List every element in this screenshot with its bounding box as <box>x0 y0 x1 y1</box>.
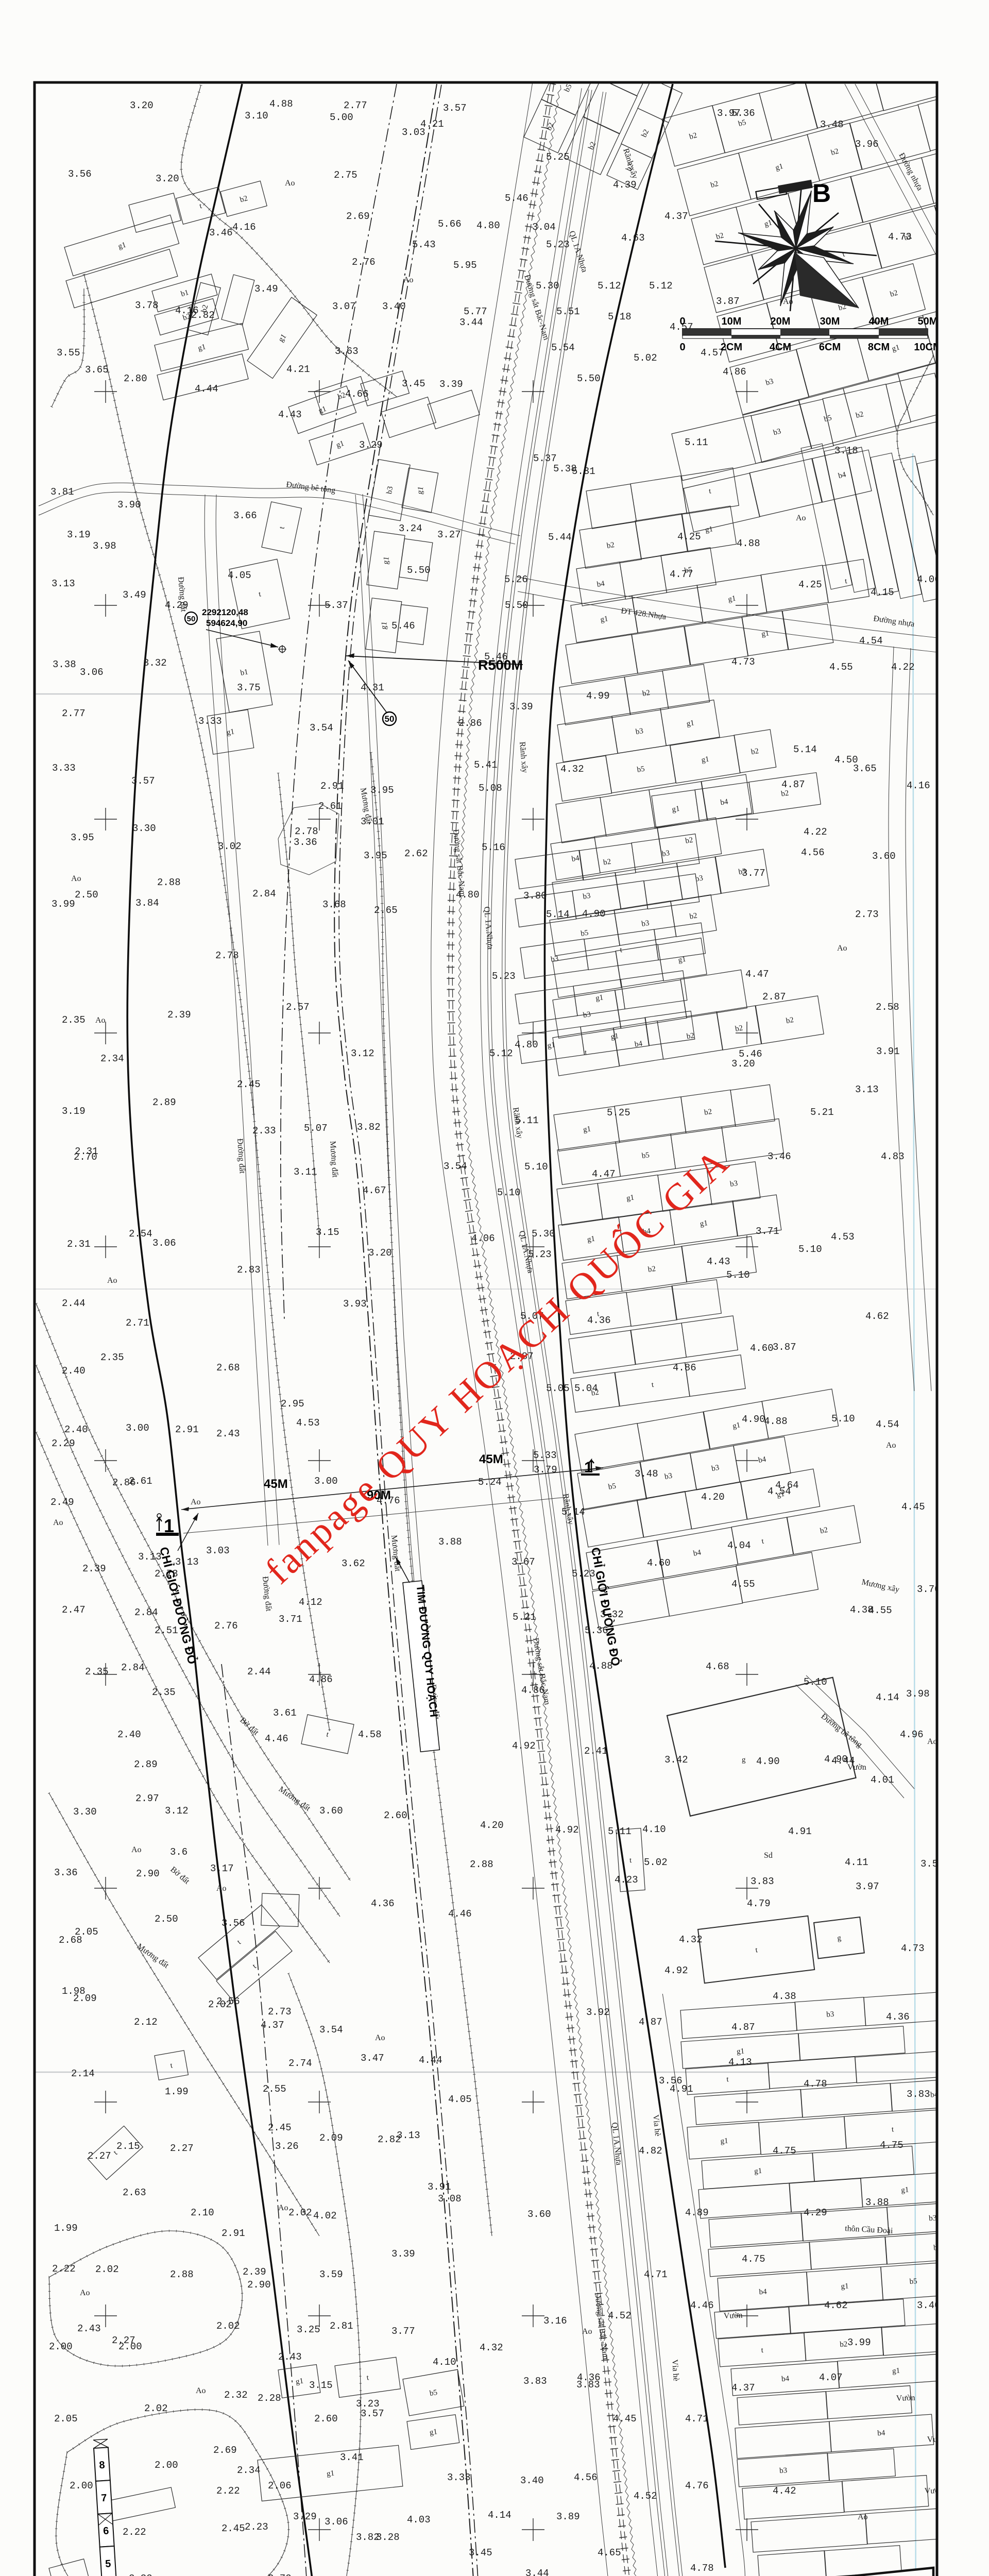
svg-text:3.63: 3.63 <box>335 346 359 357</box>
svg-text:4.87: 4.87 <box>781 779 805 790</box>
svg-text:2.14: 2.14 <box>71 2068 95 2079</box>
svg-text:4.62: 4.62 <box>865 1311 889 1322</box>
svg-text:5.41: 5.41 <box>474 759 498 771</box>
svg-text:3.57: 3.57 <box>361 2408 384 2419</box>
svg-text:6CM: 6CM <box>819 342 841 353</box>
svg-text:3.71: 3.71 <box>279 1614 302 1625</box>
svg-text:Ao: Ao <box>886 1441 896 1450</box>
svg-text:g1: g1 <box>892 2367 900 2376</box>
svg-text:g1: g1 <box>583 1125 591 1134</box>
svg-text:5.43: 5.43 <box>412 239 436 250</box>
svg-text:2.91: 2.91 <box>320 781 344 792</box>
svg-text:4.52: 4.52 <box>634 2490 657 2502</box>
svg-text:2.73: 2.73 <box>855 909 879 920</box>
svg-text:g1: g1 <box>380 621 389 630</box>
svg-text:g1: g1 <box>705 525 713 534</box>
svg-text:3.17: 3.17 <box>210 1863 234 1874</box>
svg-text:3.90: 3.90 <box>117 499 141 511</box>
svg-text:4.65: 4.65 <box>598 2547 621 2558</box>
svg-text:5.00: 5.00 <box>330 112 353 123</box>
svg-text:b3: b3 <box>826 2010 834 2019</box>
svg-text:4.36: 4.36 <box>371 1898 395 1909</box>
svg-text:5.10: 5.10 <box>524 1161 548 1173</box>
svg-text:5.37: 5.37 <box>533 453 557 464</box>
svg-text:3.78: 3.78 <box>135 300 159 311</box>
svg-text:2.91: 2.91 <box>175 1424 199 1435</box>
svg-text:3.44: 3.44 <box>459 317 483 328</box>
svg-text:4.10: 4.10 <box>642 1824 666 1835</box>
svg-text:1.99: 1.99 <box>54 2223 78 2234</box>
svg-text:3.54: 3.54 <box>444 1161 467 1172</box>
svg-text:2.12: 2.12 <box>134 2016 158 2028</box>
svg-text:3.13: 3.13 <box>397 2130 420 2141</box>
svg-text:4.10: 4.10 <box>433 2357 456 2368</box>
svg-text:b5: b5 <box>608 1482 617 1491</box>
svg-text:4.05: 4.05 <box>448 2094 472 2105</box>
svg-text:5.51: 5.51 <box>556 306 580 317</box>
svg-text:3.49: 3.49 <box>254 283 278 295</box>
svg-text:2.35: 2.35 <box>152 1687 176 1698</box>
svg-text:3.45: 3.45 <box>402 378 425 389</box>
svg-text:3.40: 3.40 <box>520 2475 544 2486</box>
svg-text:2.84: 2.84 <box>134 1607 158 1618</box>
svg-text:3.68: 3.68 <box>322 899 346 910</box>
svg-text:5.14: 5.14 <box>793 744 817 755</box>
svg-text:2.61: 2.61 <box>129 1476 152 1487</box>
svg-text:4.36: 4.36 <box>577 2372 601 2383</box>
svg-text:2.43: 2.43 <box>278 2351 302 2363</box>
svg-text:2.45: 2.45 <box>237 1079 261 1090</box>
svg-text:3.46: 3.46 <box>768 1151 791 1162</box>
svg-text:2.78: 2.78 <box>215 950 239 961</box>
svg-text:3.59: 3.59 <box>319 2269 343 2280</box>
svg-text:4.53: 4.53 <box>296 1417 320 1429</box>
svg-text:b2: b2 <box>751 747 759 756</box>
svg-text:b2: b2 <box>603 858 611 867</box>
svg-text:594624,90: 594624,90 <box>206 618 247 628</box>
svg-text:3.82: 3.82 <box>357 1122 381 1133</box>
svg-text:b2: b2 <box>647 1265 656 1274</box>
svg-text:Ao: Ao <box>80 2289 90 2297</box>
svg-text:Ao: Ao <box>858 2513 868 2521</box>
svg-text:4.37: 4.37 <box>261 2020 284 2031</box>
svg-text:2.63: 2.63 <box>123 2187 146 2198</box>
svg-text:4.11: 4.11 <box>845 1857 868 1868</box>
svg-text:2.41: 2.41 <box>584 1745 608 1757</box>
svg-text:b2: b2 <box>840 2340 848 2349</box>
svg-text:Ao: Ao <box>278 2204 288 2212</box>
svg-text:4.20: 4.20 <box>701 1492 725 1503</box>
svg-text:b4: b4 <box>720 798 729 807</box>
svg-text:3.00: 3.00 <box>314 1476 338 1487</box>
svg-text:2.84: 2.84 <box>121 1662 145 1673</box>
svg-text:b4: b4 <box>759 2287 768 2296</box>
svg-text:2.78: 2.78 <box>295 826 318 837</box>
svg-text:4.54: 4.54 <box>859 635 883 647</box>
svg-text:b3: b3 <box>582 892 591 901</box>
svg-text:3.46: 3.46 <box>209 227 233 239</box>
svg-text:5.30: 5.30 <box>536 280 559 292</box>
svg-text:4.71: 4.71 <box>644 2269 668 2280</box>
svg-text:7: 7 <box>101 2493 107 2504</box>
svg-text:4.39: 4.39 <box>613 179 637 191</box>
svg-text:4.99: 4.99 <box>586 690 610 702</box>
svg-text:4.92: 4.92 <box>555 1824 579 1836</box>
svg-text:b2: b2 <box>685 836 693 845</box>
svg-text:3.60: 3.60 <box>527 2209 551 2220</box>
svg-text:3.13: 3.13 <box>855 1084 879 1095</box>
svg-text:5.11: 5.11 <box>608 1826 632 1837</box>
svg-text:2.58: 2.58 <box>876 1002 899 1013</box>
svg-text:2.50: 2.50 <box>75 889 98 901</box>
svg-text:b2: b2 <box>689 911 697 921</box>
svg-text:3.36: 3.36 <box>54 1867 78 1878</box>
svg-text:4.37: 4.37 <box>731 2382 755 2394</box>
svg-text:3.15: 3.15 <box>309 2380 333 2391</box>
svg-text:45M: 45M <box>479 1452 503 1466</box>
svg-text:g1: g1 <box>671 805 680 814</box>
svg-text:g1: g1 <box>600 615 608 624</box>
svg-text:2.45: 2.45 <box>268 2122 292 2133</box>
svg-text:b3: b3 <box>779 2466 788 2475</box>
svg-text:4.07: 4.07 <box>819 2372 843 2383</box>
svg-text:5.23: 5.23 <box>492 971 516 982</box>
svg-text:g1: g1 <box>595 993 604 1003</box>
svg-text:2.75: 2.75 <box>334 170 357 181</box>
svg-text:4.90: 4.90 <box>582 908 606 920</box>
svg-text:b2: b2 <box>606 541 615 550</box>
svg-text:4.16: 4.16 <box>232 222 256 233</box>
svg-text:2.35: 2.35 <box>85 1666 109 1677</box>
svg-text:3.02: 3.02 <box>218 841 242 852</box>
svg-text:2.39: 2.39 <box>243 2266 266 2278</box>
svg-text:g1: g1 <box>587 1234 595 1244</box>
svg-text:b2: b2 <box>704 1108 712 1117</box>
svg-text:4.60: 4.60 <box>647 1557 671 1569</box>
svg-text:3.12: 3.12 <box>165 1805 189 1817</box>
svg-text:4.32: 4.32 <box>679 1934 703 1945</box>
svg-text:b4: b4 <box>571 854 580 863</box>
svg-text:4.47: 4.47 <box>745 969 769 980</box>
svg-text:2.76: 2.76 <box>214 1620 238 1632</box>
svg-text:5.50: 5.50 <box>407 565 431 576</box>
svg-text:2.72: 2.72 <box>268 2573 292 2576</box>
svg-text:2.32: 2.32 <box>129 2573 152 2576</box>
svg-text:4.83: 4.83 <box>881 1151 905 1162</box>
svg-text:3.20: 3.20 <box>130 100 154 111</box>
svg-text:4.14: 4.14 <box>488 2510 511 2521</box>
svg-text:2.86: 2.86 <box>458 718 482 729</box>
svg-text:4.32: 4.32 <box>560 764 584 775</box>
svg-text:4.78: 4.78 <box>804 2078 827 2090</box>
svg-text:2.69: 2.69 <box>213 2445 237 2456</box>
svg-text:4.02: 4.02 <box>313 2210 337 2222</box>
svg-text:Vườn: Vườn <box>724 2311 743 2320</box>
svg-text:4.25: 4.25 <box>677 531 701 543</box>
svg-text:2.00: 2.00 <box>155 2460 178 2471</box>
svg-text:4CM: 4CM <box>770 342 791 353</box>
svg-text:3.32: 3.32 <box>143 657 167 669</box>
svg-text:3.95: 3.95 <box>370 785 394 796</box>
svg-text:b2: b2 <box>642 689 651 698</box>
svg-text:R500M: R500M <box>478 657 523 673</box>
svg-text:3.10: 3.10 <box>245 110 268 122</box>
svg-text:4.45: 4.45 <box>901 1501 925 1513</box>
svg-text:b5: b5 <box>641 1151 650 1160</box>
svg-text:4.91: 4.91 <box>788 1826 812 1837</box>
svg-text:2.77: 2.77 <box>344 100 367 111</box>
svg-text:3.54: 3.54 <box>319 2024 343 2036</box>
svg-text:2.71: 2.71 <box>126 1317 149 1329</box>
svg-text:b4: b4 <box>877 2429 886 2437</box>
svg-text:4.54: 4.54 <box>768 1486 791 1497</box>
svg-text:2.76: 2.76 <box>352 257 376 268</box>
svg-text:5.54: 5.54 <box>551 342 575 353</box>
svg-text:3.11: 3.11 <box>294 1166 317 1178</box>
svg-text:3.16: 3.16 <box>543 2315 567 2327</box>
svg-text:2.80: 2.80 <box>124 373 147 384</box>
svg-text:4.16: 4.16 <box>175 305 199 316</box>
svg-text:1: 1 <box>584 1459 593 1476</box>
svg-text:1.98: 1.98 <box>62 1986 86 1997</box>
svg-text:3.95: 3.95 <box>364 850 387 861</box>
svg-text:2.89: 2.89 <box>152 1097 176 1108</box>
svg-text:4.31: 4.31 <box>361 682 384 693</box>
svg-text:2.34: 2.34 <box>237 2465 261 2476</box>
svg-text:Sd: Sd <box>764 1851 773 1860</box>
svg-text:6: 6 <box>103 2526 109 2537</box>
svg-text:3.26: 3.26 <box>275 2141 299 2152</box>
svg-text:3.67: 3.67 <box>511 1556 535 1568</box>
svg-text:40M: 40M <box>869 316 889 327</box>
svg-text:2.43: 2.43 <box>216 1428 240 1439</box>
svg-text:5.66: 5.66 <box>438 218 462 230</box>
svg-text:3.62: 3.62 <box>342 1558 365 1569</box>
svg-text:b3: b3 <box>929 2214 937 2223</box>
svg-text:4.87: 4.87 <box>639 2016 662 2028</box>
svg-text:4.77: 4.77 <box>670 569 693 580</box>
svg-text:3.83: 3.83 <box>523 2376 547 2387</box>
svg-text:2.22: 2.22 <box>52 2263 76 2275</box>
svg-text:3.36: 3.36 <box>294 837 317 848</box>
svg-text:2.47: 2.47 <box>62 1604 86 1616</box>
svg-text:3.06: 3.06 <box>80 667 104 678</box>
svg-text:3.13: 3.13 <box>175 1556 199 1568</box>
svg-text:b4: b4 <box>596 580 606 589</box>
svg-text:5.30: 5.30 <box>532 1228 555 1240</box>
svg-text:4.32: 4.32 <box>480 2342 503 2353</box>
svg-text:3.19: 3.19 <box>62 1106 86 1117</box>
svg-text:5.10: 5.10 <box>726 1269 750 1281</box>
svg-text:8: 8 <box>99 2460 105 2471</box>
svg-text:4.03: 4.03 <box>407 2514 431 2526</box>
svg-text:2.84: 2.84 <box>252 888 276 900</box>
svg-text:Ao: Ao <box>375 2033 385 2042</box>
svg-text:2.40: 2.40 <box>62 1365 86 1377</box>
svg-text:2.87: 2.87 <box>762 991 786 1003</box>
svg-text:4.56: 4.56 <box>574 2472 598 2483</box>
svg-text:Ao: Ao <box>131 1845 142 1854</box>
svg-text:3.08: 3.08 <box>438 2193 462 2205</box>
svg-text:3.28: 3.28 <box>376 2532 400 2543</box>
svg-text:3.60: 3.60 <box>872 851 896 862</box>
svg-text:4.38: 4.38 <box>850 1604 874 1616</box>
svg-text:30M: 30M <box>820 316 840 327</box>
svg-text:3.38: 3.38 <box>53 659 76 670</box>
svg-text:2.50: 2.50 <box>155 1913 178 1925</box>
svg-text:3.83: 3.83 <box>751 1876 774 1887</box>
svg-text:2.49: 2.49 <box>50 1497 74 1508</box>
svg-text:3.39: 3.39 <box>509 701 533 713</box>
svg-text:3.03: 3.03 <box>206 1545 230 1556</box>
svg-text:3.18: 3.18 <box>834 445 858 456</box>
svg-text:4.91: 4.91 <box>670 2083 693 2095</box>
svg-text:4.82: 4.82 <box>639 2145 662 2157</box>
svg-text:2.44: 2.44 <box>247 1666 271 1677</box>
svg-text:3.20: 3.20 <box>731 1058 755 1070</box>
svg-text:5.12: 5.12 <box>649 280 673 292</box>
svg-text:3.40: 3.40 <box>382 301 406 312</box>
svg-text:4.25: 4.25 <box>798 579 822 590</box>
svg-text:3.47: 3.47 <box>361 2053 384 2064</box>
svg-text:2.90: 2.90 <box>247 2279 271 2291</box>
svg-text:g: g <box>742 1756 746 1764</box>
svg-text:b3: b3 <box>550 955 559 964</box>
svg-text:2.31: 2.31 <box>67 1239 91 1250</box>
svg-text:4.80: 4.80 <box>515 1039 538 1050</box>
svg-text:3.93: 3.93 <box>343 1298 367 1310</box>
svg-text:5: 5 <box>105 2558 111 2570</box>
svg-text:4.90: 4.90 <box>756 1756 780 1767</box>
svg-text:5.11: 5.11 <box>685 437 708 448</box>
svg-text:1.99: 1.99 <box>165 2086 189 2097</box>
svg-text:3.91: 3.91 <box>428 2181 451 2193</box>
svg-text:2.05: 2.05 <box>54 2413 78 2425</box>
svg-text:3.12: 3.12 <box>351 1048 374 1059</box>
svg-text:b1: b1 <box>240 668 249 677</box>
svg-text:3.66: 3.66 <box>233 510 257 521</box>
svg-text:4.90: 4.90 <box>742 1414 765 1425</box>
svg-text:3.06: 3.06 <box>325 2516 348 2528</box>
svg-text:2.00: 2.00 <box>49 2341 73 2352</box>
svg-text:5.21: 5.21 <box>513 1612 536 1623</box>
svg-text:g1: g1 <box>547 1041 556 1050</box>
svg-text:3.44: 3.44 <box>525 2568 549 2576</box>
svg-text:5.16: 5.16 <box>482 842 505 853</box>
svg-text:g1: g1 <box>901 2186 909 2195</box>
svg-text:4.50: 4.50 <box>834 754 858 766</box>
svg-text:Ao: Ao <box>71 874 81 883</box>
svg-text:1: 1 <box>164 1515 174 1536</box>
svg-text:4.16: 4.16 <box>907 780 930 791</box>
svg-text:2.62: 2.62 <box>404 848 428 859</box>
svg-text:2.74: 2.74 <box>288 2058 312 2069</box>
svg-text:2.51: 2.51 <box>155 1625 178 1636</box>
svg-text:2CM: 2CM <box>721 342 742 353</box>
svg-text:4.45: 4.45 <box>613 2413 637 2425</box>
svg-text:4.71: 4.71 <box>685 2413 709 2425</box>
svg-text:b3: b3 <box>635 727 644 736</box>
svg-text:g1: g1 <box>841 2282 849 2291</box>
svg-text:0: 0 <box>679 316 685 327</box>
svg-text:2.34: 2.34 <box>100 1053 124 1064</box>
svg-text:5.04: 5.04 <box>574 1383 598 1394</box>
svg-text:4.29: 4.29 <box>804 2207 827 2218</box>
svg-text:2.61: 2.61 <box>318 801 342 812</box>
svg-text:3.83: 3.83 <box>907 2089 930 2100</box>
svg-text:4.86: 4.86 <box>673 1362 696 1374</box>
svg-text:2.89: 2.89 <box>134 1759 158 1770</box>
svg-text:2292120,48: 2292120,48 <box>202 607 248 617</box>
svg-text:3.57: 3.57 <box>131 775 155 787</box>
svg-text:4.47: 4.47 <box>592 1168 616 1180</box>
svg-text:g1: g1 <box>737 2047 745 2056</box>
svg-text:5.31: 5.31 <box>572 466 595 477</box>
svg-text:4.14: 4.14 <box>876 1692 899 1703</box>
svg-text:3.25: 3.25 <box>297 2324 320 2335</box>
svg-text:3.61: 3.61 <box>273 1707 297 1719</box>
svg-text:5.10: 5.10 <box>804 1676 827 1688</box>
svg-text:b3: b3 <box>641 919 650 928</box>
svg-text:4.55: 4.55 <box>731 1579 755 1590</box>
svg-text:Vườn: Vườn <box>896 2394 915 2403</box>
svg-text:3.99: 3.99 <box>52 899 75 910</box>
svg-text:2.15: 2.15 <box>116 2141 140 2152</box>
svg-text:3.55: 3.55 <box>57 347 80 359</box>
svg-text:4.04: 4.04 <box>727 1540 751 1551</box>
svg-text:3.75: 3.75 <box>237 682 261 693</box>
svg-text:3.30: 3.30 <box>132 823 156 834</box>
svg-text:4.73: 4.73 <box>901 1943 925 1954</box>
svg-text:2.39: 2.39 <box>82 1563 106 1574</box>
svg-text:Ao: Ao <box>53 1518 63 1527</box>
svg-text:4.22: 4.22 <box>804 826 827 838</box>
svg-text:4.68: 4.68 <box>706 1661 729 1672</box>
svg-text:3.04: 3.04 <box>532 222 556 233</box>
svg-text:5.23: 5.23 <box>546 239 570 250</box>
svg-text:3.20: 3.20 <box>368 1247 392 1259</box>
svg-text:4.90: 4.90 <box>824 1754 848 1765</box>
svg-text:B: B <box>812 179 831 208</box>
svg-text:2.33: 2.33 <box>252 1125 276 1137</box>
svg-text:4.12: 4.12 <box>299 1597 322 1608</box>
svg-text:g1: g1 <box>732 1421 741 1430</box>
svg-text:g1: g1 <box>429 2428 438 2437</box>
svg-text:2.29: 2.29 <box>52 1438 75 1449</box>
svg-text:3.19: 3.19 <box>67 529 91 540</box>
svg-text:3.99: 3.99 <box>847 2337 871 2348</box>
svg-text:Ao: Ao <box>107 1276 117 1285</box>
svg-text:b3: b3 <box>385 486 395 495</box>
svg-text:b5: b5 <box>429 2388 438 2398</box>
svg-text:5.02: 5.02 <box>644 1857 668 1868</box>
svg-text:4.53: 4.53 <box>831 1231 855 1243</box>
svg-text:b3: b3 <box>711 1464 720 1473</box>
svg-text:2.65: 2.65 <box>374 905 398 916</box>
svg-text:4.58: 4.58 <box>358 1729 382 1740</box>
svg-text:5.23: 5.23 <box>572 1568 595 1580</box>
svg-text:4.05: 4.05 <box>228 570 251 581</box>
svg-text:2.28: 2.28 <box>258 2393 281 2404</box>
svg-text:Ao: Ao <box>216 1884 227 1893</box>
svg-text:5.36: 5.36 <box>731 108 755 119</box>
svg-text:5.33: 5.33 <box>533 1450 557 1461</box>
svg-text:2.60: 2.60 <box>384 1810 407 1821</box>
svg-text:2.35: 2.35 <box>100 1352 124 1363</box>
svg-text:3.39: 3.39 <box>391 2248 415 2260</box>
svg-text:4.96: 4.96 <box>900 1729 924 1740</box>
svg-text:2.68: 2.68 <box>216 1362 240 1374</box>
